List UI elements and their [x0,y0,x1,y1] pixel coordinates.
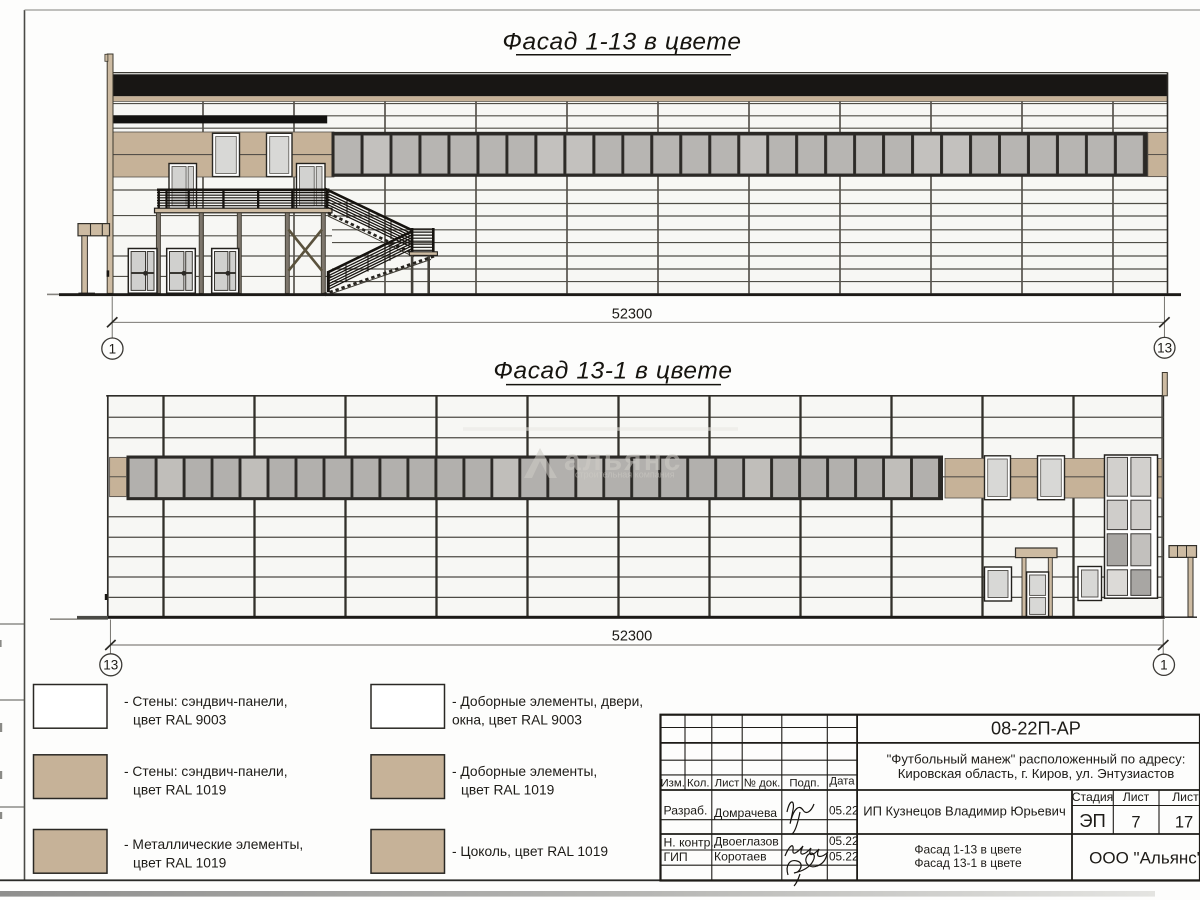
svg-text:7: 7 [1131,814,1140,832]
svg-text:Фасад 13-1 в цвете: Фасад 13-1 в цвете [493,358,732,385]
svg-text:- Стены: сэндвич-панели,: - Стены: сэндвич-панели, [124,764,288,779]
svg-text:Домрачева: Домрачева [714,806,777,820]
svg-text:13: 13 [103,658,118,673]
svg-text:цвет RAL 1019: цвет RAL 1019 [133,783,227,798]
svg-text:1: 1 [109,341,117,356]
svg-text:ИП Кузнецов Владимир Юрьевич: ИП Кузнецов Владимир Юрьевич [863,804,1065,819]
svg-text:- Доборные элементы, двери,: - Доборные элементы, двери, [452,694,643,709]
svg-text:ЭП: ЭП [1079,810,1106,831]
svg-text:Н. контр.: Н. контр. [664,836,714,850]
svg-text:05.22: 05.22 [829,834,859,848]
svg-text:17: 17 [1175,814,1193,832]
svg-text:Фасад 1-13 в цвете: Фасад 1-13 в цвете [914,843,1022,857]
svg-text:- Доборные элементы,: - Доборные элементы, [452,764,597,779]
svg-text:ГИП: ГИП [664,850,688,864]
svg-text:52300: 52300 [612,629,653,645]
svg-text:№ док.: № док. [744,778,781,790]
svg-text:Фасад 1-13 в цвете: Фасад 1-13 в цвете [502,29,741,56]
svg-text:Изм.: Изм. [660,778,684,790]
svg-text:52300: 52300 [612,306,653,322]
svg-text:цвет RAL 9003: цвет RAL 9003 [133,713,227,728]
svg-text:1: 1 [1160,658,1168,673]
svg-text:Разраб.: Разраб. [664,804,708,818]
svg-text:Фасад 13-1 в цвете: Фасад 13-1 в цвете [914,856,1022,870]
svg-text:окна, цвет RAL 9003: окна, цвет RAL 9003 [452,713,582,728]
svg-text:Лист: Лист [715,778,741,790]
svg-text:05.22: 05.22 [829,804,859,818]
svg-text:13: 13 [1157,341,1172,356]
svg-text:цвет RAL 1019: цвет RAL 1019 [461,783,555,798]
svg-text:Лист: Лист [1123,790,1150,804]
svg-text:Коротаев: Коротаев [714,850,767,864]
svg-text:Листов: Листов [1172,790,1200,804]
svg-text:- Стены: сэндвич-панели,: - Стены: сэндвич-панели, [124,694,288,709]
svg-text:Двоеглазов: Двоеглазов [714,835,779,849]
svg-text:Стадия: Стадия [1072,790,1114,804]
svg-text:строительная компания: строительная компания [575,470,675,480]
svg-text:Подп.: Подп. [789,778,819,790]
svg-text:08-22П-АР: 08-22П-АР [991,719,1081,739]
svg-text:- Металлические элементы,: - Металлические элементы, [124,837,303,852]
svg-text:Дата: Дата [829,776,855,788]
svg-text:ООО "Альянс": ООО "Альянс" [1089,849,1200,868]
svg-text:- Цоколь, цвет RAL 1019: - Цоколь, цвет RAL 1019 [452,844,608,859]
svg-text:Кол.: Кол. [687,778,710,790]
svg-text:цвет RAL 1019: цвет RAL 1019 [133,856,227,871]
svg-text:Кировская область, г. Киров, у: Кировская область, г. Киров, ул. Энтузиа… [898,766,1175,781]
svg-text:05.22: 05.22 [829,850,859,864]
svg-text:"Футбольный манеж" расположенн: "Футбольный манеж" расположенный по адре… [887,752,1186,767]
